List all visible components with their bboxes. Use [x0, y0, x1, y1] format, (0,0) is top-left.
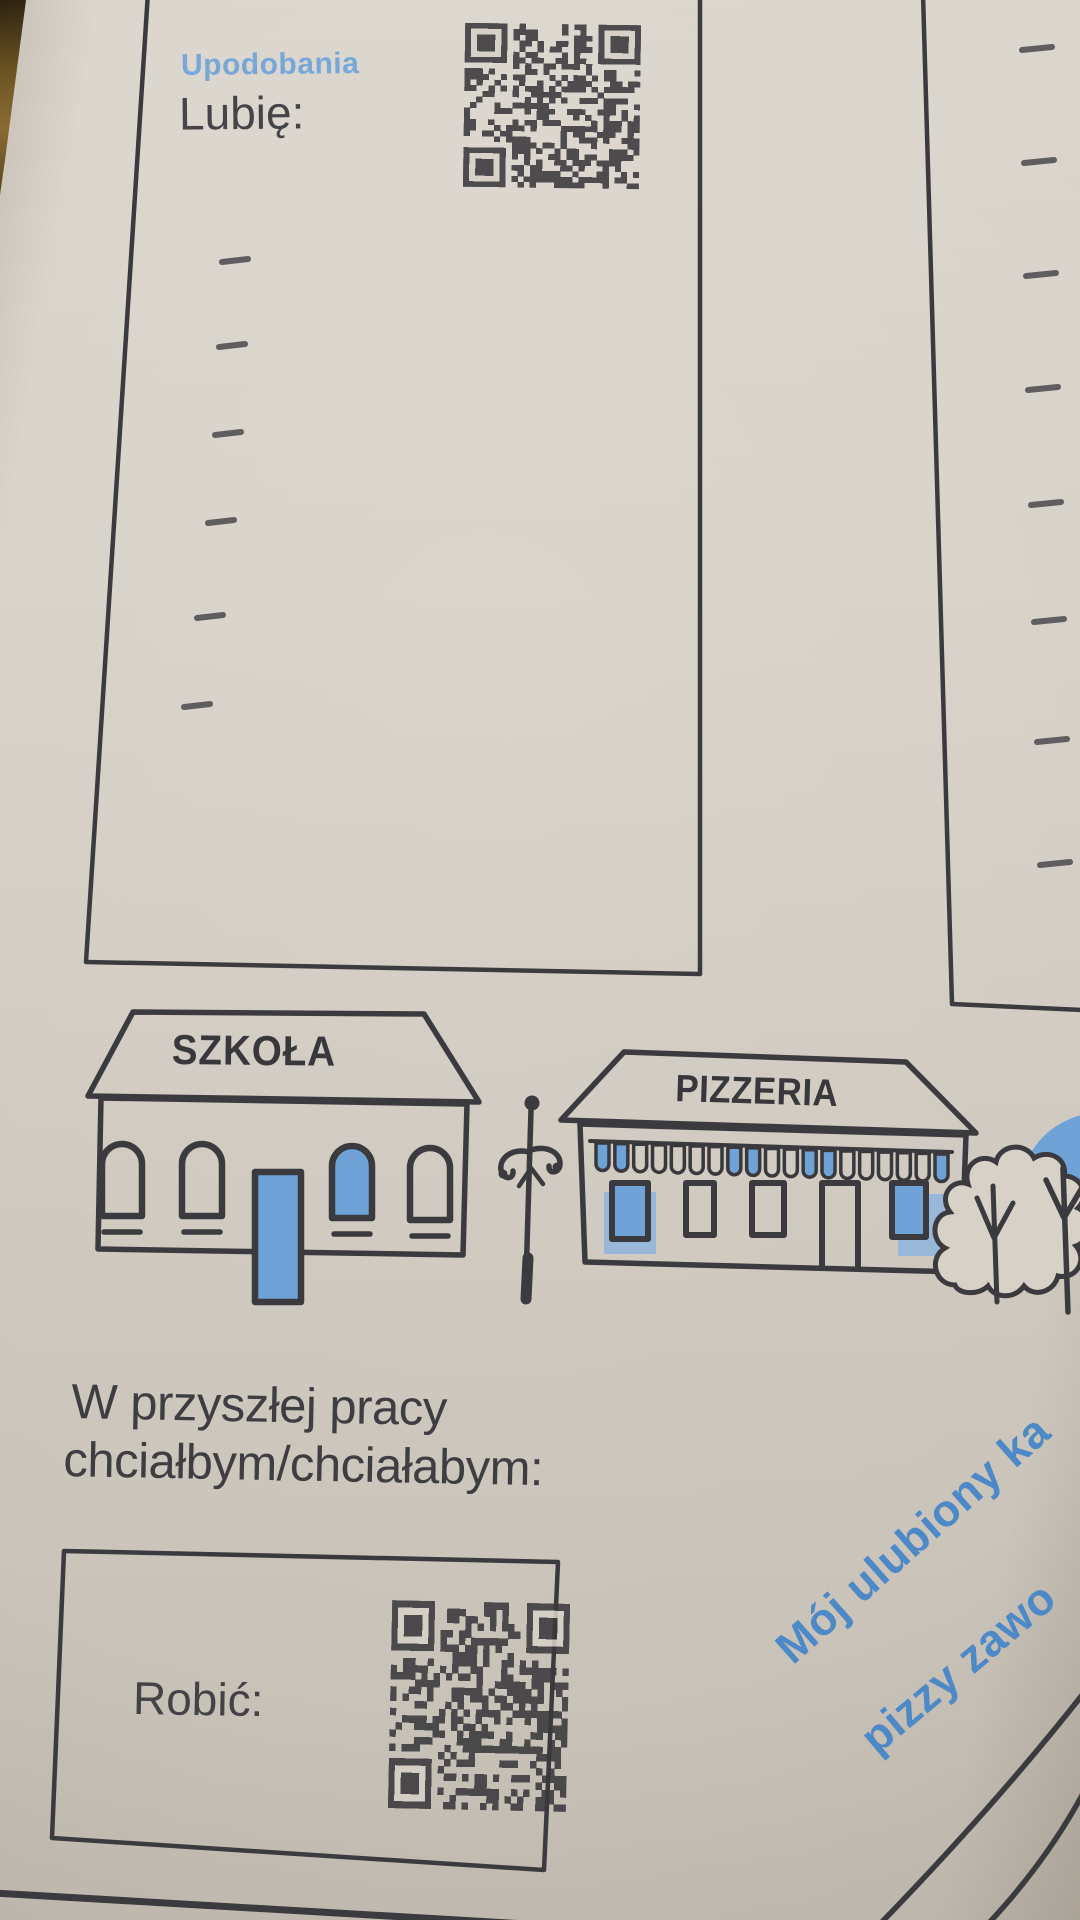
school-door [255, 1172, 301, 1302]
school-window [102, 1144, 142, 1216]
bottom-box-edge [0, 1893, 560, 1920]
awning-stripe [803, 1150, 816, 1178]
awning-stripe [766, 1149, 779, 1177]
school-window [182, 1144, 222, 1216]
awning-stripe [784, 1149, 797, 1177]
pizzeria-window [752, 1183, 784, 1235]
awning-stripe [897, 1153, 910, 1181]
awning-stripe [615, 1144, 628, 1172]
school-sign: SZKOŁA [171, 1026, 336, 1076]
awning-stripe [653, 1145, 666, 1173]
pizzeria-window-blue [892, 1183, 926, 1237]
bullet-dash [1040, 862, 1070, 865]
bullet-dash [208, 520, 234, 523]
worksheet-photo: Upodobania Lubię: SZKOŁA PIZZERIA W przy… [0, 0, 1080, 1920]
bullet-dash [1024, 160, 1054, 163]
bullet-dash [1026, 273, 1056, 276]
lamppost-illustration [499, 1096, 562, 1300]
likes-bullet-dashes [184, 259, 248, 707]
job-box-label: Robić: [133, 1671, 264, 1727]
bullet-dash [1022, 47, 1052, 50]
bullet-dash [1034, 619, 1064, 622]
awning-stripe [822, 1150, 835, 1178]
awning-stripe [841, 1151, 854, 1179]
awning-stripe [690, 1146, 703, 1174]
neighbor-bullet-dashes [1022, 47, 1070, 865]
pizzeria-sign: PIZZERIA [675, 1068, 839, 1116]
pizzeria-door [822, 1183, 858, 1266]
job-prompt-line2: chciałbym/chciałabym: [63, 1432, 544, 1497]
awning-stripe [935, 1154, 948, 1182]
awning-stripe [671, 1145, 684, 1173]
qr-code-icon [463, 23, 641, 189]
qr-code-icon [388, 1600, 570, 1812]
lamppost-base [526, 1258, 528, 1299]
school-window [410, 1148, 450, 1220]
likes-heading: Upodobania [181, 47, 360, 83]
bullet-dash [197, 615, 223, 618]
bullet-dash [1037, 739, 1067, 742]
job-prompt-line1: W przyszłej pracy [71, 1374, 447, 1437]
bullet-dash [1028, 387, 1058, 390]
awning-stripe [596, 1143, 609, 1171]
bullet-dash [222, 259, 248, 262]
bullet-dash [215, 432, 241, 435]
pizzeria-window [686, 1183, 714, 1235]
bullet-dash [184, 704, 210, 707]
wheel-curve-inner [988, 1788, 1080, 1920]
awning-stripe [860, 1152, 873, 1180]
bullet-dash [219, 344, 245, 347]
pizzeria-window-blue [612, 1183, 648, 1239]
lamppost-lamp-left [499, 1170, 508, 1179]
likes-prompt: Lubię: [179, 85, 305, 140]
awning-stripe [709, 1147, 722, 1175]
awning-stripe [747, 1148, 760, 1176]
bullet-dash [1031, 502, 1061, 505]
awning-stripe [879, 1152, 892, 1180]
lamppost-lamp-right [553, 1163, 562, 1172]
cloud-tree [935, 1147, 1080, 1296]
awning-stripe [634, 1144, 647, 1172]
awning-stripe [916, 1153, 929, 1181]
school-window-blue [332, 1146, 372, 1218]
awning-stripe [728, 1147, 741, 1175]
